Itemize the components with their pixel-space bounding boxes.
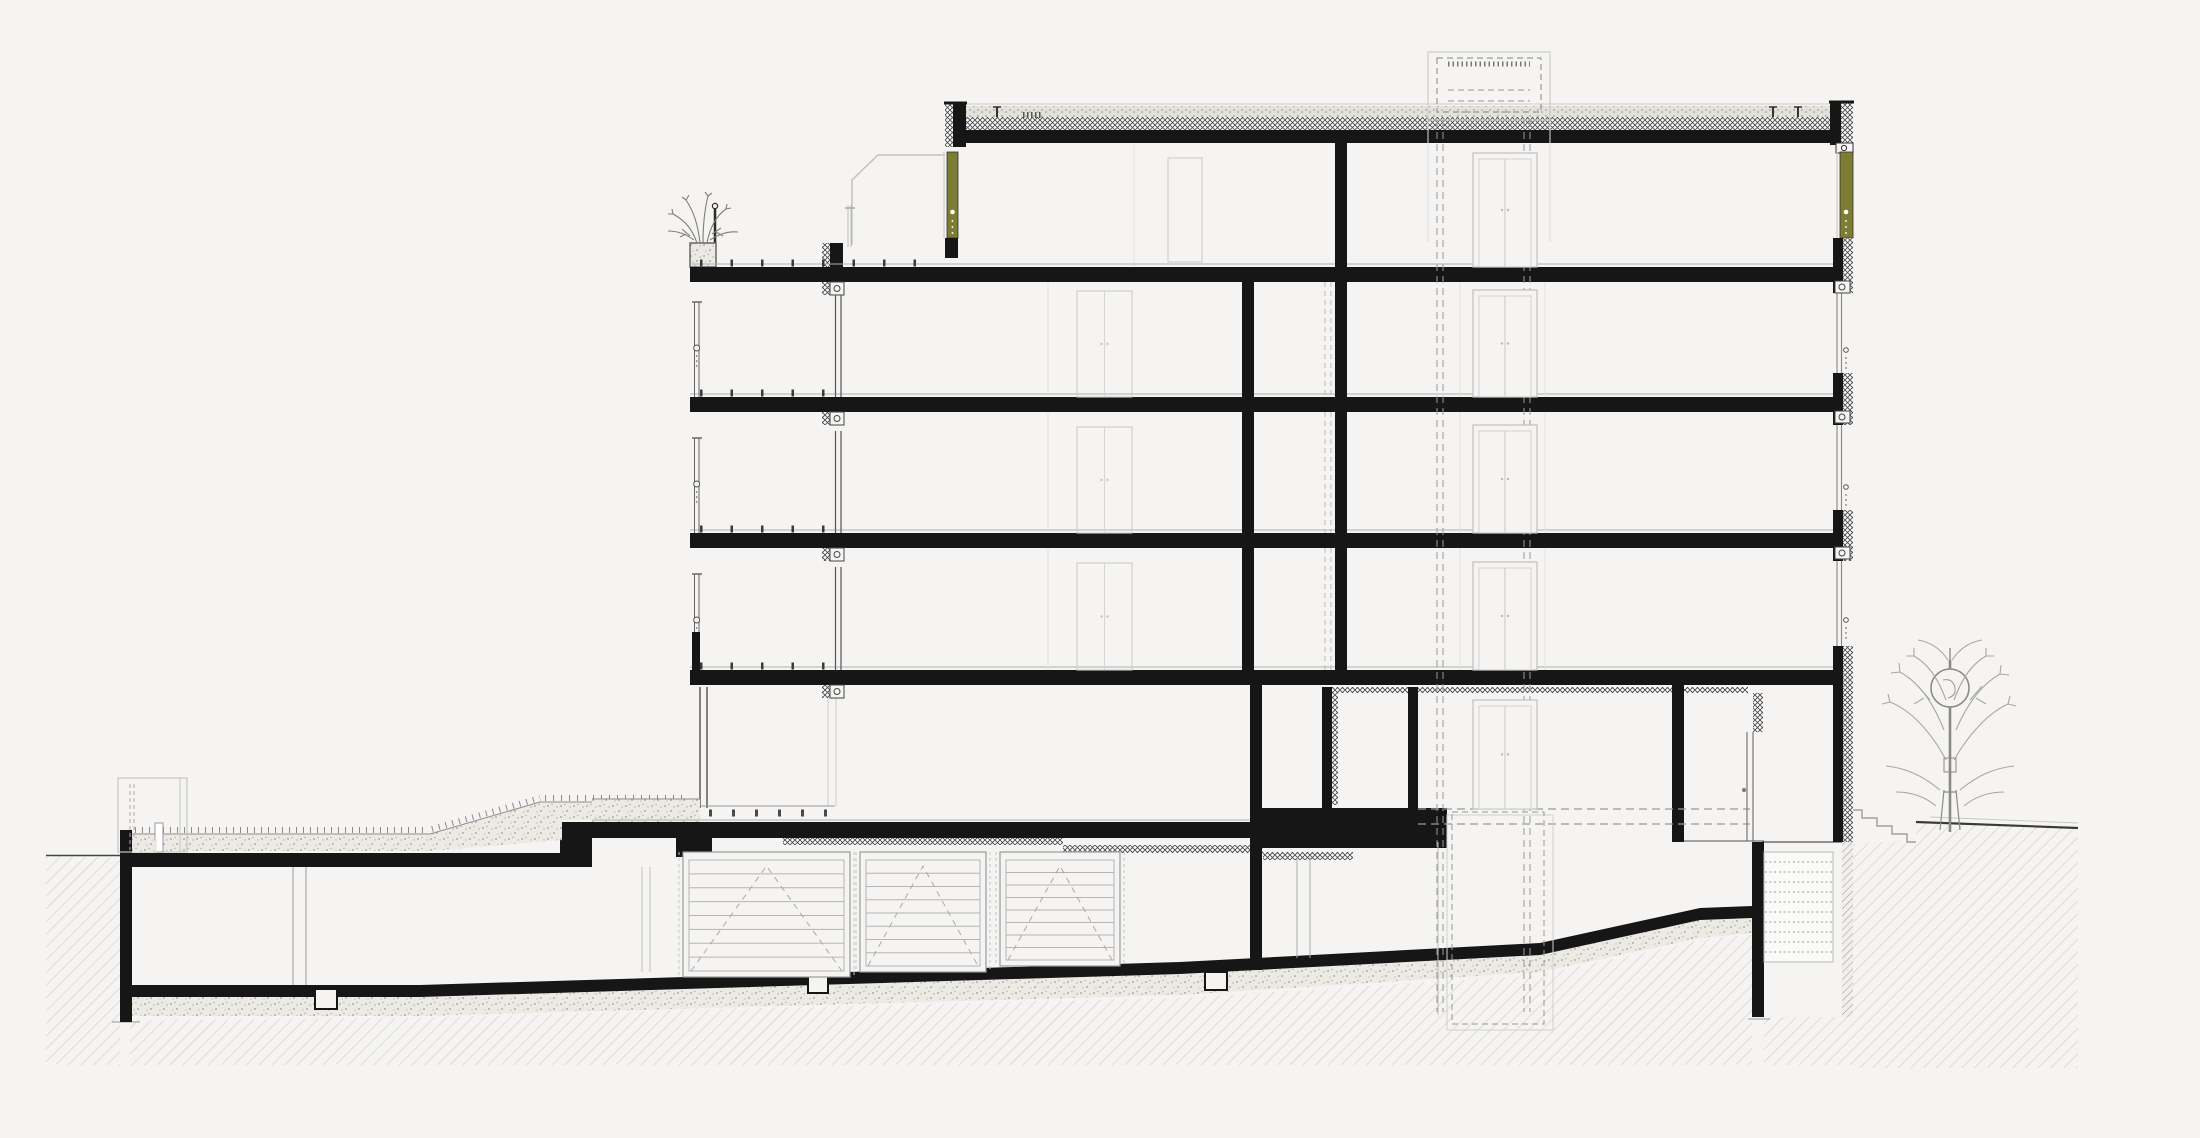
entry-insulation-stub	[1753, 693, 1763, 732]
terrace-planter	[690, 243, 716, 267]
interior-wall-b	[1335, 143, 1347, 267]
elevator-door-dot	[1507, 209, 1509, 211]
ground-wall-2	[1322, 687, 1332, 808]
spandrel-insulation	[1843, 646, 1853, 698]
drainage-board-strip	[1842, 842, 1853, 1017]
balcony-solid-parapet	[692, 632, 700, 670]
apartment-door-dot	[1106, 615, 1108, 617]
elevator-door-dot	[1501, 615, 1503, 617]
apartment-door-dot	[1100, 479, 1102, 481]
basement-wall-left	[1250, 848, 1262, 970]
ground-slab-thick-mass	[1250, 808, 1447, 848]
left-parapet-insulation	[945, 103, 954, 147]
entry-step-fill	[133, 839, 157, 852]
apartment-door-dot	[1106, 343, 1108, 345]
railing-dot	[696, 365, 698, 367]
right-window-dot	[1845, 632, 1847, 634]
garage-door-frame	[683, 852, 850, 977]
garage-ceiling-insulation-1	[783, 837, 1063, 845]
right-window-dot	[1845, 627, 1847, 629]
apartment-door-dot	[1100, 615, 1102, 617]
garage-door-frame	[1000, 852, 1120, 966]
elevator-door-dot	[1501, 753, 1503, 755]
garage-doors	[679, 852, 1124, 977]
room-insulation-left	[1332, 687, 1338, 805]
interior-wall-a	[1242, 548, 1254, 670]
railing-dot	[696, 360, 698, 362]
railing-dot	[696, 501, 698, 503]
right-olive-window-frame	[1840, 152, 1853, 238]
left-olive-sill	[945, 238, 958, 258]
right-olive-dot-4	[1845, 232, 1847, 234]
apartment-door-dot	[1106, 479, 1108, 481]
right-window-dot	[1845, 637, 1847, 639]
right-roller-blind-box	[1835, 281, 1850, 293]
right-parapet	[1830, 102, 1842, 145]
roof-insulation-band	[957, 117, 1830, 130]
railing-clamp	[694, 617, 700, 623]
right-olive-dot-3	[1845, 226, 1847, 228]
soil-hatch-left	[46, 857, 120, 1065]
right-window-handle-dot	[1844, 348, 1849, 353]
right-window-dot	[1845, 362, 1847, 364]
soil-hatch-right	[1853, 822, 2078, 1068]
room-insulation-top	[1332, 687, 1408, 693]
blind-box-insulation	[822, 412, 830, 425]
roller-blind-box	[830, 282, 844, 295]
roof-slab	[947, 130, 1853, 143]
drainage-pit-3	[1205, 972, 1227, 990]
floor-slab	[690, 670, 1853, 685]
elevator-door-dot	[1507, 615, 1509, 617]
roller-blind-box	[830, 412, 844, 425]
garage-door-frame	[860, 852, 986, 972]
terrace-upstand	[830, 243, 843, 267]
left-olive-window-frame	[947, 152, 958, 238]
spandrel-wall	[1833, 646, 1843, 698]
blind-box-insulation	[822, 685, 830, 698]
floor-slab	[690, 267, 1853, 282]
roller-blind-box	[830, 685, 844, 698]
garage-ceiling-insulation-3	[1263, 852, 1353, 860]
spandrel-wall	[1833, 698, 1843, 842]
right-window-dot	[1845, 499, 1847, 501]
interior-wall-a	[1242, 412, 1254, 533]
railing-dot	[696, 355, 698, 357]
entry-door-handle	[1742, 788, 1746, 792]
left-olive-dot-2	[952, 220, 954, 222]
floor-slab	[690, 533, 1853, 548]
elevator-door-dot	[1501, 342, 1503, 344]
ground-wall-1	[1250, 685, 1262, 815]
roof-gravel-band	[957, 106, 1830, 117]
blind-box-insulation	[822, 548, 830, 561]
apartment-door-dot	[1100, 343, 1102, 345]
garage-roof-slab	[120, 853, 592, 867]
right-window-dot	[1845, 494, 1847, 496]
right-window-head-box	[1836, 143, 1853, 153]
ground-wall-4	[1672, 685, 1684, 842]
spandrel-insulation	[1843, 698, 1853, 842]
soil-hatch-under-pit	[1764, 1017, 1853, 1065]
right-window-dot	[1845, 367, 1847, 369]
roller-blind-box	[830, 548, 844, 561]
railing-dot	[696, 627, 698, 629]
section-drawing-sheet: Architectural building cross-section dra…	[0, 0, 2200, 1138]
gravel-areaway-fill	[1764, 852, 1833, 962]
drainage-pit-2	[808, 975, 828, 993]
railing-clamp	[694, 481, 700, 487]
interior-wall-b	[1335, 282, 1347, 397]
right-window-handle-dot	[1844, 485, 1849, 490]
building-section-svg: Architectural building cross-section dra…	[0, 0, 2200, 1138]
right-olive-dot-2	[1845, 220, 1847, 222]
left-parapet	[953, 103, 966, 147]
elevator-door-dot	[1501, 209, 1503, 211]
right-window-dot	[1845, 357, 1847, 359]
railing-clamp	[694, 345, 700, 351]
right-olive-handle-dot	[1844, 210, 1849, 215]
left-olive-handle-dot	[950, 210, 955, 215]
right-window-dot	[1845, 504, 1847, 506]
railing-dot	[696, 496, 698, 498]
interior-wall-b	[1335, 412, 1347, 533]
right-roller-blind-box	[1835, 547, 1850, 559]
entry-insulation-top	[1684, 687, 1748, 693]
right-window-handle-dot	[1844, 618, 1849, 623]
interior-wall-b	[1335, 548, 1347, 670]
ground-wall-3	[1408, 687, 1418, 808]
elevator-door-dot	[1501, 478, 1503, 480]
blind-box-insulation	[822, 282, 830, 295]
floor-slab	[690, 397, 1853, 412]
terrace-paving-fill	[592, 799, 700, 822]
interior-wall-a	[1242, 282, 1254, 397]
left-olive-dot-3	[952, 226, 954, 228]
lamp-sphere	[1931, 669, 1969, 707]
drainage-pit-1	[315, 989, 337, 1009]
right-roller-blind-box	[1835, 411, 1850, 423]
left-olive-dot-4	[952, 232, 954, 234]
elevator-door-dot	[1507, 753, 1509, 755]
elevator-door-dot	[1507, 478, 1509, 480]
corridor-insulation-top	[1418, 687, 1672, 693]
railing-dot	[696, 491, 698, 493]
elevator-door-dot	[1507, 342, 1509, 344]
basement-wall-right	[1752, 842, 1764, 1017]
